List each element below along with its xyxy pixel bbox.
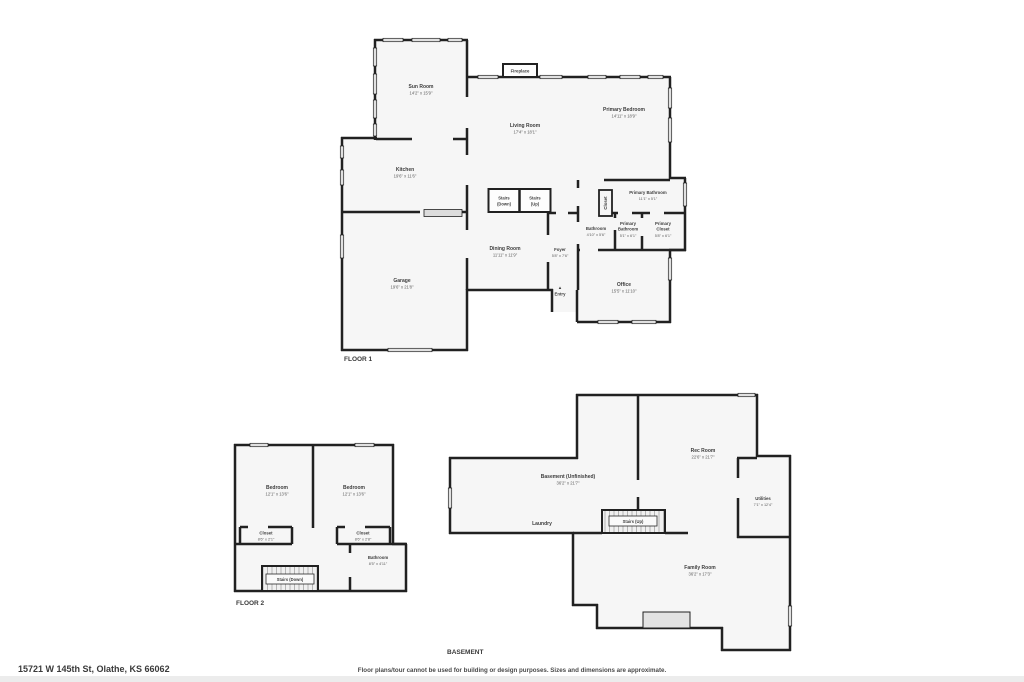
room-label-laundry: Laundry bbox=[532, 521, 552, 527]
svg-text:Rec Room: Rec Room bbox=[691, 448, 716, 454]
svg-text:Closet: Closet bbox=[259, 531, 273, 536]
svg-text:Dining Room: Dining Room bbox=[489, 246, 521, 252]
floorplan-canvas: Fireplace Stairs (Down) Stairs (Up) Clos… bbox=[0, 0, 1024, 682]
entry-arrow-icon: ▲ bbox=[558, 285, 562, 290]
svg-text:Family Room: Family Room bbox=[684, 565, 716, 571]
svg-text:5'8" x 7'6": 5'8" x 7'6" bbox=[552, 254, 569, 258]
fireplace: Fireplace bbox=[503, 64, 537, 77]
svg-text:Office: Office bbox=[617, 282, 631, 288]
floorplan-page: Fireplace Stairs (Down) Stairs (Up) Clos… bbox=[0, 0, 1024, 682]
basement-title: BASEMENT bbox=[447, 649, 484, 656]
floor1-stairs: Stairs (Down) Stairs (Up) bbox=[489, 189, 551, 212]
svg-text:Bedroom: Bedroom bbox=[266, 485, 289, 491]
room-label-primary-closet: Primary Closet 5'8" x 6'1" bbox=[655, 221, 672, 238]
svg-text:Foyer: Foyer bbox=[554, 247, 566, 252]
svg-text:Sun Room: Sun Room bbox=[409, 84, 435, 90]
svg-text:Primary Bedroom: Primary Bedroom bbox=[603, 107, 646, 113]
svg-text:Bathroom: Bathroom bbox=[618, 227, 638, 232]
svg-text:Bathroom: Bathroom bbox=[586, 226, 606, 231]
svg-text:36'2" x 21'7": 36'2" x 21'7" bbox=[557, 481, 580, 486]
svg-text:17'4" x 18'1": 17'4" x 18'1" bbox=[514, 130, 537, 135]
room-label-dining-room: Dining Room 11'11" x 11'9" bbox=[489, 246, 521, 258]
garage-threshold bbox=[424, 210, 462, 217]
disclaimer-text: Floor plans/tour cannot be used for buil… bbox=[358, 667, 667, 674]
stairs-up-label2: (Up) bbox=[531, 202, 540, 207]
room-label-bedroom-left: Bedroom 12'1" x 13'6" bbox=[266, 485, 289, 497]
svg-text:Laundry: Laundry bbox=[532, 521, 552, 527]
svg-text:22'6" x 21'7": 22'6" x 21'7" bbox=[692, 455, 715, 460]
floor2-title: FLOOR 2 bbox=[236, 600, 265, 607]
svg-text:Primary: Primary bbox=[655, 221, 672, 226]
svg-text:Garage: Garage bbox=[393, 278, 410, 284]
svg-text:Living Room: Living Room bbox=[510, 123, 541, 129]
room-label-rec-room: Rec Room 22'6" x 21'7" bbox=[691, 448, 716, 460]
svg-text:Closet: Closet bbox=[656, 227, 670, 232]
svg-text:11'11" x 11'9": 11'11" x 11'9" bbox=[493, 253, 518, 258]
svg-text:12'1" x 13'6": 12'1" x 13'6" bbox=[266, 492, 289, 497]
svg-text:Kitchen: Kitchen bbox=[396, 167, 414, 173]
room-label-primary-bathroom-2: Primary Bathroom 5'1" x 6'1" bbox=[618, 221, 638, 238]
svg-text:Primary: Primary bbox=[620, 221, 637, 226]
room-label-living-room: Living Room 17'4" x 18'1" bbox=[510, 123, 541, 135]
svg-text:4'10" x 5'6": 4'10" x 5'6" bbox=[587, 233, 606, 237]
footer-strip bbox=[0, 676, 1024, 682]
property-address: 15721 W 145th St, Olathe, KS 66062 bbox=[18, 664, 170, 674]
svg-text:14'11" x 18'9": 14'11" x 18'9" bbox=[612, 114, 637, 119]
svg-text:5'8" x 6'1": 5'8" x 6'1" bbox=[655, 234, 672, 238]
svg-text:14'2" x 15'9": 14'2" x 15'9" bbox=[410, 91, 433, 96]
stairs-down-label: Stairs bbox=[498, 196, 510, 201]
svg-text:5'1" x 6'1": 5'1" x 6'1" bbox=[620, 234, 637, 238]
stairs-up-label: Stairs (Up) bbox=[623, 519, 644, 524]
floor2-footprint bbox=[235, 445, 406, 591]
footer: 15721 W 145th St, Olathe, KS 66062 Floor… bbox=[0, 664, 1024, 682]
svg-text:8'6" x 2'1": 8'6" x 2'1" bbox=[258, 538, 275, 542]
stairs-down-label: Stairs (Down) bbox=[277, 577, 304, 582]
fireplace-label: Fireplace bbox=[511, 69, 530, 74]
svg-text:15'5" x 11'10": 15'5" x 11'10" bbox=[612, 289, 637, 294]
svg-text:19'6" x 21'8": 19'6" x 21'8" bbox=[391, 285, 414, 290]
svg-text:11'1" x 5'1": 11'1" x 5'1" bbox=[639, 197, 658, 201]
svg-text:Basement (Unfinished): Basement (Unfinished) bbox=[541, 474, 596, 480]
basement-step-box bbox=[643, 612, 690, 628]
svg-text:Bathroom: Bathroom bbox=[368, 555, 388, 560]
basement-plan: Stairs (Up) Basement (Unfinished) 36'2" … bbox=[447, 393, 792, 656]
svg-text:8'6" x 2'8": 8'6" x 2'8" bbox=[355, 538, 372, 542]
svg-text:Primary Bathroom: Primary Bathroom bbox=[629, 190, 667, 195]
room-label-sun-room: Sun Room 14'2" x 15'9" bbox=[409, 84, 435, 96]
stairs-down-label2: (Down) bbox=[497, 202, 512, 207]
room-label-bedroom-right: Bedroom 12'1" x 13'6" bbox=[343, 485, 366, 497]
room-label-family-room: Family Room 36'2" x 17'3" bbox=[684, 565, 716, 577]
svg-text:19'6" x 11'6": 19'6" x 11'6" bbox=[394, 174, 417, 179]
svg-text:Utilities: Utilities bbox=[755, 496, 771, 501]
svg-text:Bedroom: Bedroom bbox=[343, 485, 366, 491]
svg-text:8'5" x 4'11": 8'5" x 4'11" bbox=[369, 562, 388, 566]
svg-text:12'1" x 13'6": 12'1" x 13'6" bbox=[343, 492, 366, 497]
floor1-title: FLOOR 1 bbox=[344, 356, 373, 363]
svg-text:36'2" x 17'3": 36'2" x 17'3" bbox=[689, 572, 712, 577]
stairs-up-label: Stairs bbox=[529, 196, 541, 201]
floor2-plan: Stairs (Down) Bedroom 12'1" x 13'6" Bedr… bbox=[234, 443, 407, 607]
svg-text:Closet: Closet bbox=[356, 531, 370, 536]
closet-label: Closet bbox=[603, 196, 608, 210]
entry-label: Entry bbox=[555, 292, 567, 297]
room-label-kitchen: Kitchen 19'6" x 11'6" bbox=[394, 167, 417, 179]
basement-stairs: Stairs (Up) bbox=[602, 510, 665, 533]
floor2-stairs: Stairs (Down) bbox=[262, 566, 318, 591]
floor1-plan: Fireplace Stairs (Down) Stairs (Up) Clos… bbox=[340, 38, 686, 363]
room-label-garage: Garage 19'6" x 21'8" bbox=[391, 278, 414, 290]
svg-text:7'1" x 12'4": 7'1" x 12'4" bbox=[754, 503, 773, 507]
